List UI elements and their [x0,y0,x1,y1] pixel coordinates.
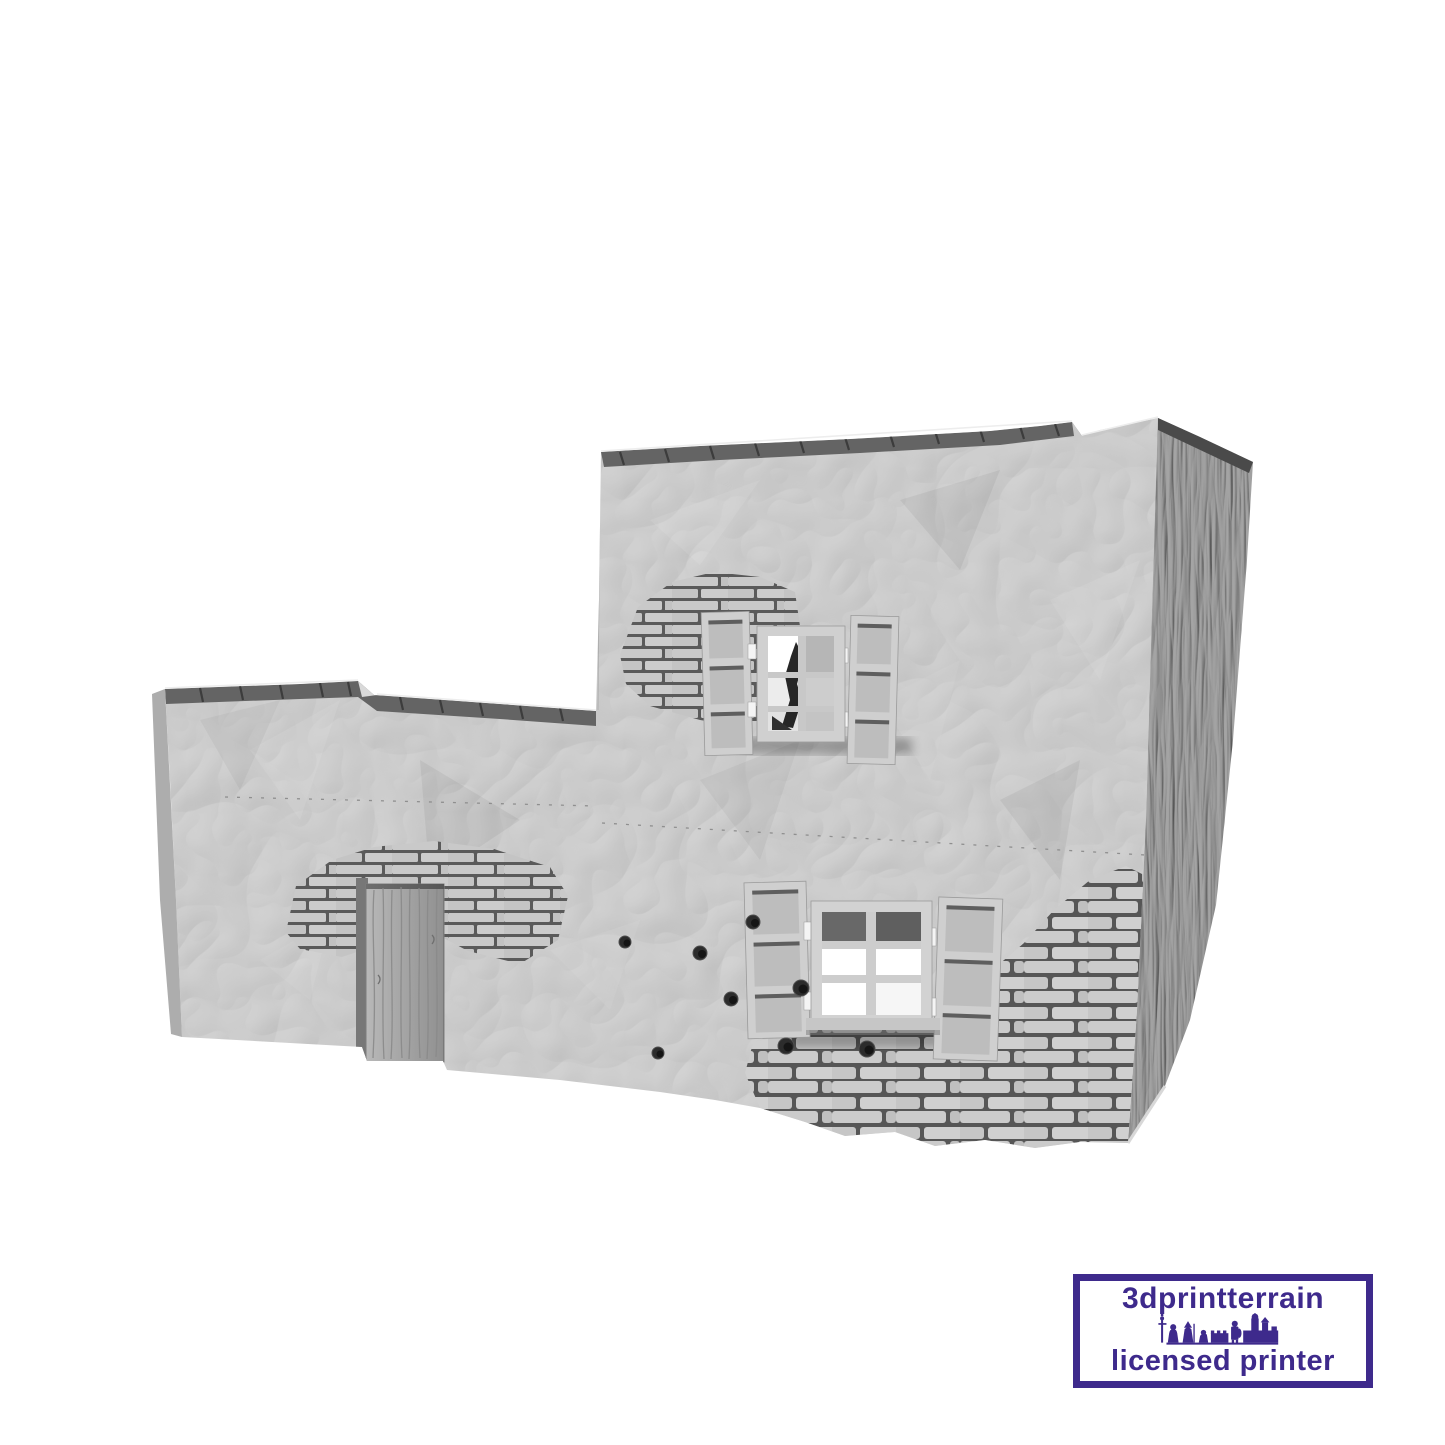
upper-right-shutter [847,615,899,764]
shutter-panels [941,905,994,1055]
door-shade-overlay [366,884,444,1062]
bullet-hole [746,915,760,929]
building-render [0,0,1445,1445]
bullet-hole [724,992,738,1006]
watermark-subtitle: licensed printer [1111,1347,1335,1376]
lower-right-shutter [933,897,1003,1061]
lower-window-sill-shadow [806,1030,940,1035]
shutter-panels [752,889,802,1032]
lower-window-sill [806,1018,940,1030]
upper-left-shutter [701,611,753,755]
door-group [356,878,444,1062]
lower-window-group [744,881,1003,1061]
bullet-hole [793,980,809,996]
shutter-panels [708,620,745,749]
lower-left-shutter [744,881,810,1039]
castle-silhouette-graphic [1123,1313,1323,1348]
castle-figures-silhouette [1158,1313,1278,1345]
render-canvas: 3dprintterrain licensed printer [0,0,1445,1445]
watermark-logo: 3dprintterrain licensed printer [1073,1274,1373,1388]
bullet-hole [778,1038,794,1054]
bullet-hole [693,946,707,960]
shutter-panels [854,624,891,759]
upper-window-group [701,611,912,764]
bullet-hole [859,1041,875,1057]
watermark-title: 3dprintterrain [1122,1284,1324,1314]
bullet-hole [619,936,631,948]
bullet-hole [652,1047,664,1059]
